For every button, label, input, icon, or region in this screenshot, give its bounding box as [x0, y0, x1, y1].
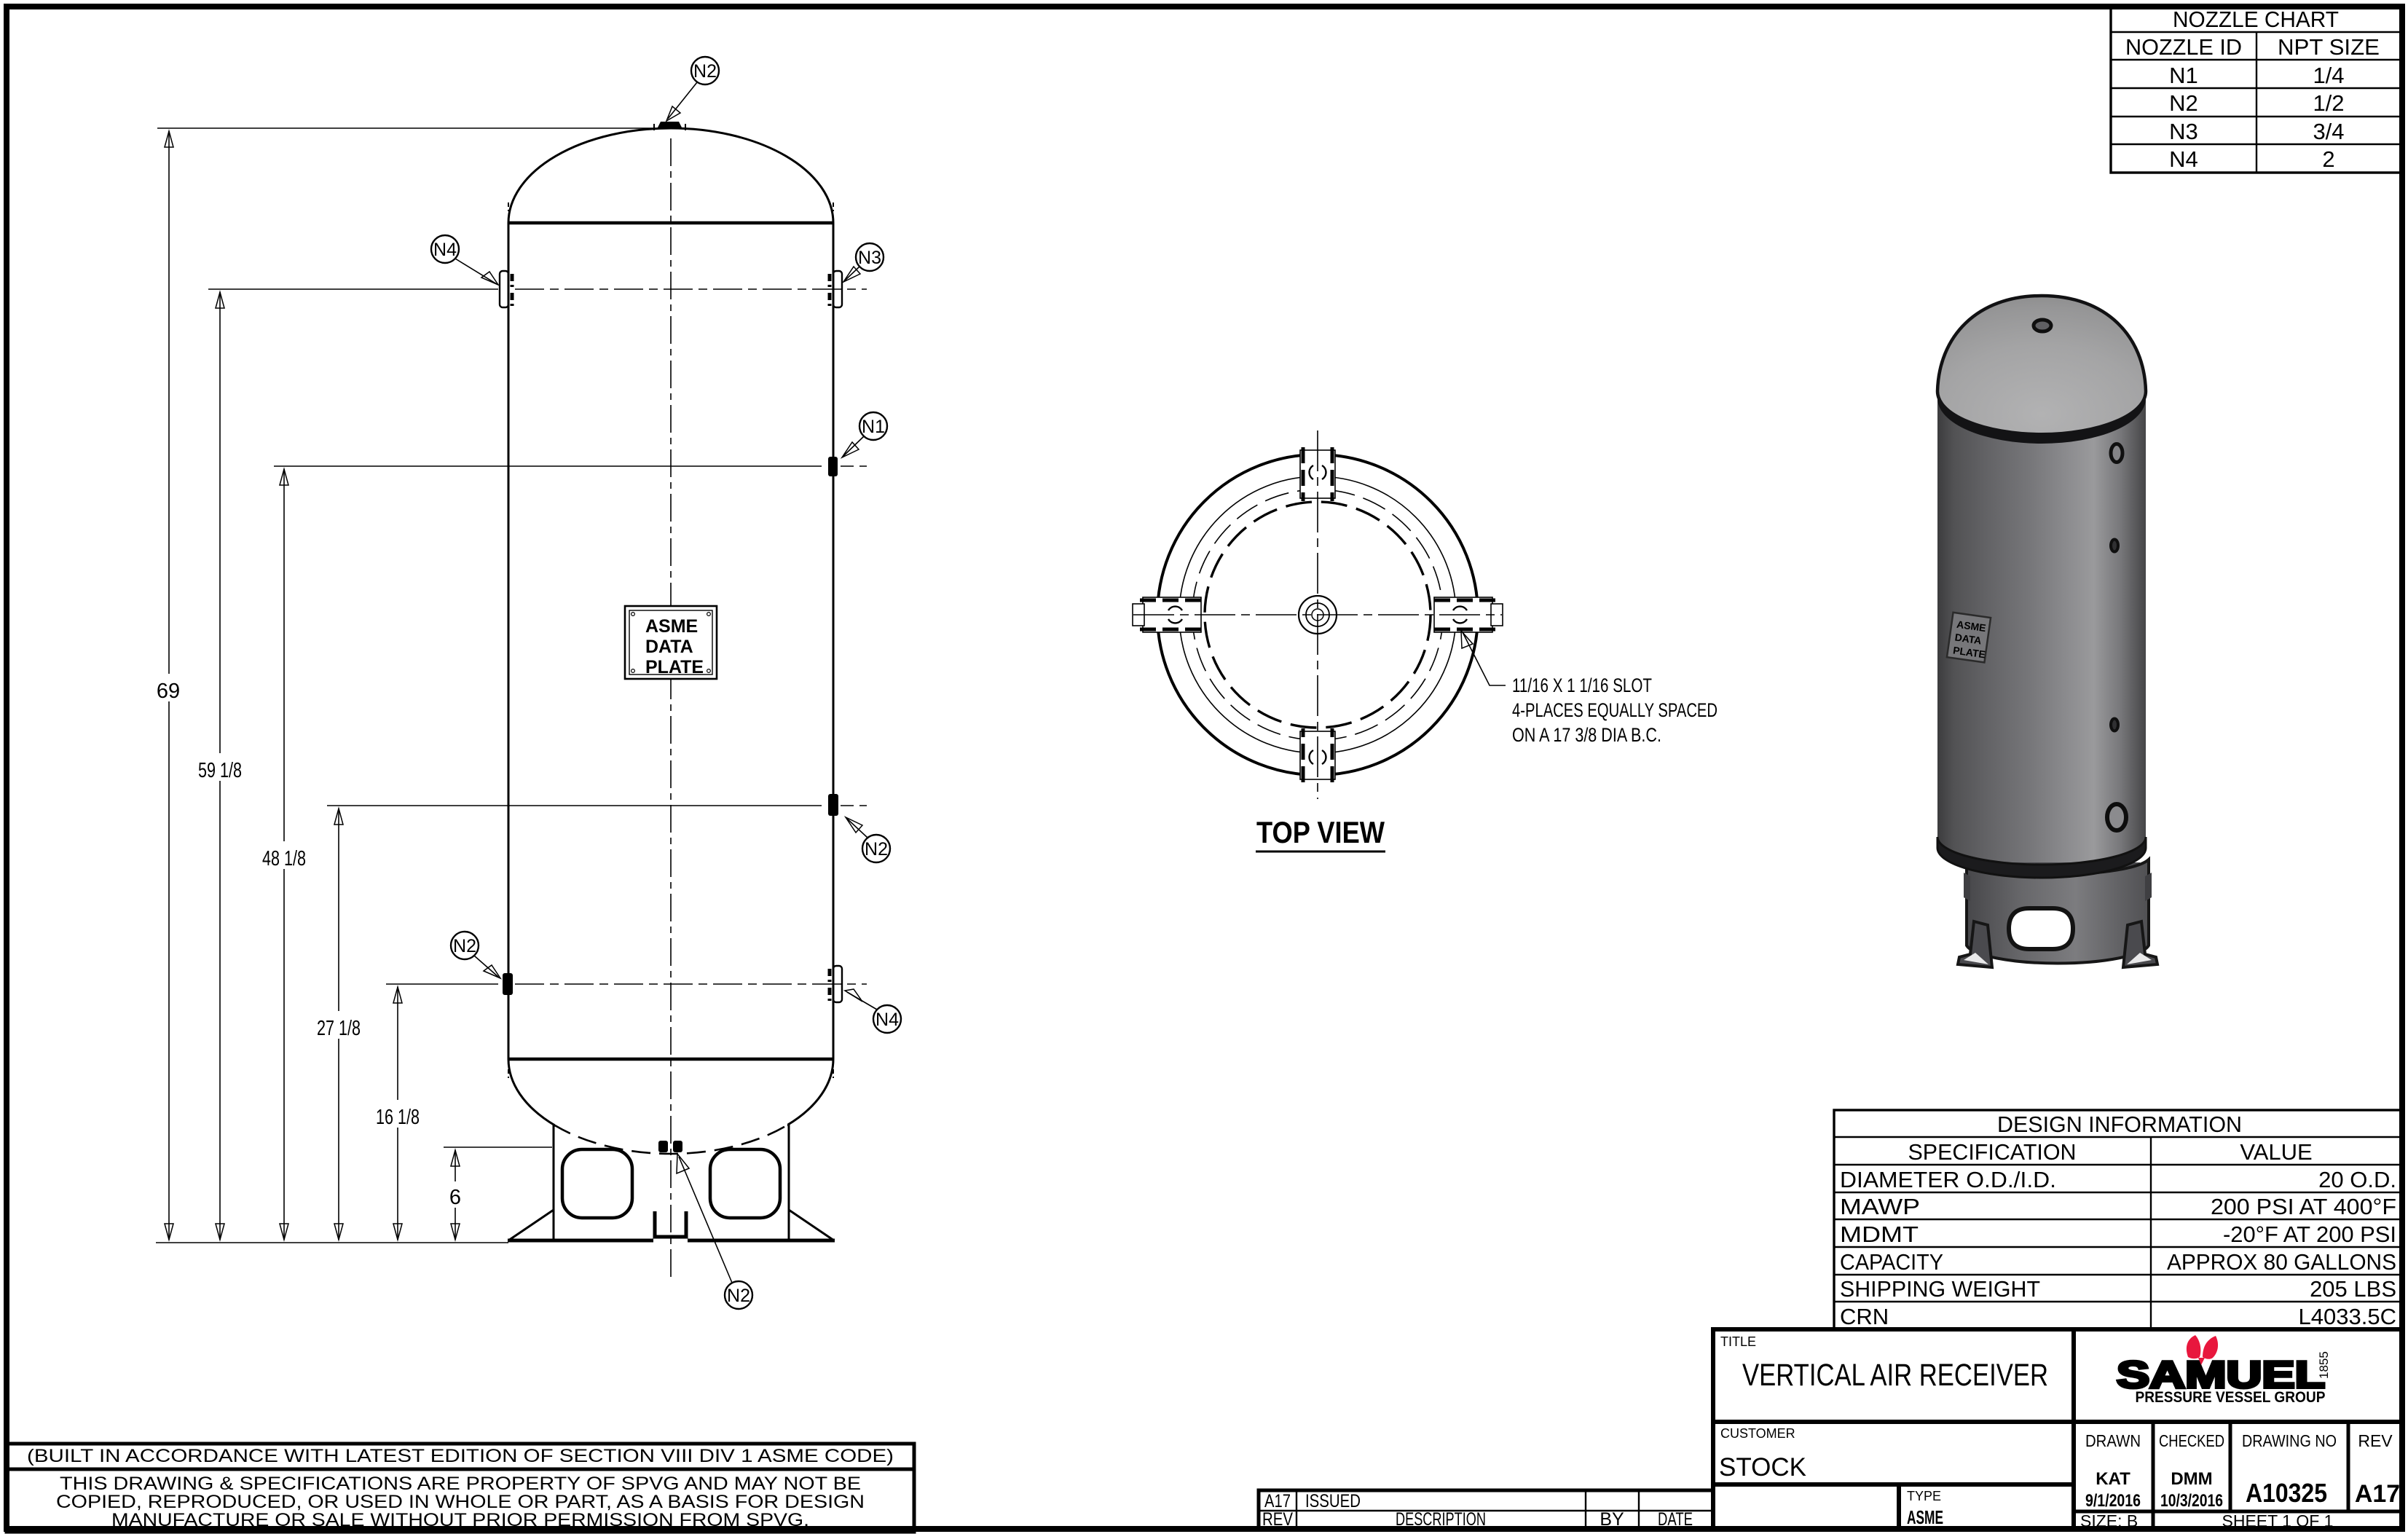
- svg-text:DATA: DATA: [645, 637, 693, 657]
- svg-text:N3: N3: [858, 248, 881, 268]
- svg-text:L4033.5C: L4033.5C: [2299, 1304, 2396, 1329]
- svg-text:11/16 X 1 1/16 SLOT: 11/16 X 1 1/16 SLOT: [1512, 674, 1652, 696]
- svg-text:16 1/8: 16 1/8: [376, 1106, 420, 1129]
- svg-text:N2: N2: [453, 936, 476, 956]
- svg-text:48 1/8: 48 1/8: [262, 847, 306, 870]
- svg-text:VALUE: VALUE: [2240, 1139, 2312, 1165]
- svg-text:N2: N2: [693, 61, 717, 82]
- svg-text:SIZE: B: SIZE: B: [2080, 1511, 2138, 1530]
- svg-text:TYPE: TYPE: [1907, 1489, 1941, 1503]
- svg-text:DRAWN: DRAWN: [2085, 1431, 2141, 1450]
- svg-text:MDMT: MDMT: [1840, 1222, 1919, 1247]
- svg-text:CHECKED: CHECKED: [2159, 1431, 2224, 1450]
- svg-text:N2: N2: [865, 839, 888, 860]
- svg-text:NOZZLE CHART: NOZZLE CHART: [2173, 7, 2339, 32]
- svg-text:59 1/8: 59 1/8: [198, 759, 242, 782]
- svg-text:PRESSURE VESSEL GROUP: PRESSURE VESSEL GROUP: [2136, 1389, 2326, 1406]
- svg-text:A10325: A10325: [2246, 1478, 2327, 1508]
- svg-text:KAT: KAT: [2096, 1469, 2130, 1489]
- svg-text:COPIED, REPRODUCED, OR USED IN: COPIED, REPRODUCED, OR USED IN WHOLE OR …: [56, 1492, 865, 1512]
- svg-text:SHEET 1 OF 1: SHEET 1 OF 1: [2222, 1511, 2334, 1530]
- svg-text:6: 6: [449, 1186, 461, 1209]
- svg-text:CAPACITY: CAPACITY: [1840, 1249, 1943, 1275]
- svg-text:ASME: ASME: [1907, 1506, 1943, 1528]
- svg-text:DESIGN INFORMATION: DESIGN INFORMATION: [1997, 1112, 2242, 1137]
- svg-text:A17: A17: [2355, 1480, 2400, 1508]
- svg-text:DATE: DATE: [1658, 1509, 1693, 1530]
- svg-text:MANUFACTURE OR SALE WITHOUT PR: MANUFACTURE OR SALE WITHOUT PRIOR PERMIS…: [111, 1510, 809, 1530]
- svg-text:DESCRIPTION: DESCRIPTION: [1396, 1509, 1486, 1530]
- svg-text:N1: N1: [862, 417, 885, 437]
- svg-text:N3: N3: [2169, 119, 2198, 144]
- svg-text:(BUILT IN ACCORDANCE WITH LATE: (BUILT IN ACCORDANCE WITH LATEST EDITION…: [27, 1446, 894, 1466]
- svg-text:DIAMETER O.D./I.D.: DIAMETER O.D./I.D.: [1840, 1167, 2056, 1192]
- svg-text:PLATE: PLATE: [645, 657, 704, 677]
- svg-text:ASME: ASME: [645, 616, 698, 637]
- svg-text:VERTICAL AIR RECEIVER: VERTICAL AIR RECEIVER: [1742, 1358, 2048, 1393]
- svg-text:REV: REV: [2358, 1431, 2393, 1450]
- svg-text:APPROX 80 GALLONS: APPROX 80 GALLONS: [2167, 1249, 2396, 1275]
- svg-text:TITLE: TITLE: [1720, 1334, 1756, 1349]
- svg-text:1/4: 1/4: [2313, 63, 2344, 88]
- svg-text:N4: N4: [2169, 146, 2198, 172]
- svg-text:N2: N2: [727, 1286, 750, 1306]
- svg-text:9/1/2016: 9/1/2016: [2085, 1491, 2141, 1511]
- svg-text:205 LBS: 205 LBS: [2310, 1276, 2396, 1302]
- svg-text:N1: N1: [2169, 63, 2198, 88]
- svg-text:-20°F AT 200 PSI: -20°F AT 200 PSI: [2223, 1222, 2396, 1247]
- svg-text:69: 69: [157, 680, 180, 703]
- svg-text:3/4: 3/4: [2313, 119, 2344, 144]
- svg-text:2: 2: [2322, 146, 2334, 172]
- svg-text:A17: A17: [1264, 1491, 1291, 1511]
- svg-text:CUSTOMER: CUSTOMER: [1720, 1426, 1795, 1441]
- svg-text:TOP VIEW: TOP VIEW: [1256, 815, 1385, 849]
- svg-text:N2: N2: [2169, 90, 2198, 116]
- svg-text:ISSUED: ISSUED: [1305, 1491, 1361, 1511]
- svg-text:REV: REV: [1262, 1509, 1293, 1530]
- svg-text:NOZZLE ID: NOZZLE ID: [2125, 34, 2242, 60]
- svg-text:1855: 1855: [2317, 1351, 2331, 1379]
- svg-text:STOCK: STOCK: [1719, 1453, 1806, 1482]
- svg-text:4-PLACES EQUALLY SPACED: 4-PLACES EQUALLY SPACED: [1512, 699, 1718, 721]
- svg-text:DMM: DMM: [2171, 1469, 2212, 1489]
- svg-text:SPECIFICATION: SPECIFICATION: [1908, 1139, 2077, 1165]
- svg-text:10/3/2016: 10/3/2016: [2160, 1491, 2223, 1511]
- svg-text:N4: N4: [876, 1010, 899, 1030]
- svg-text:1/2: 1/2: [2313, 90, 2344, 116]
- svg-text:200 PSI AT 400°F: 200 PSI AT 400°F: [2211, 1194, 2396, 1219]
- svg-text:CRN: CRN: [1840, 1304, 1889, 1329]
- svg-text:27 1/8: 27 1/8: [317, 1017, 361, 1040]
- svg-text:NPT SIZE: NPT SIZE: [2278, 34, 2380, 60]
- svg-text:THIS DRAWING & SPECIFICATIONS: THIS DRAWING & SPECIFICATIONS ARE PROPER…: [60, 1474, 861, 1494]
- svg-text:N4: N4: [433, 240, 457, 260]
- svg-text:ON A 17 3/8 DIA B.C.: ON A 17 3/8 DIA B.C.: [1512, 724, 1661, 746]
- svg-text:20 O.D.: 20 O.D.: [2318, 1167, 2396, 1192]
- svg-text:MAWP: MAWP: [1840, 1194, 1920, 1219]
- svg-text:SHIPPING WEIGHT: SHIPPING WEIGHT: [1840, 1276, 2040, 1302]
- svg-text:BY: BY: [1600, 1509, 1624, 1530]
- svg-text:DRAWING NO: DRAWING NO: [2242, 1431, 2337, 1450]
